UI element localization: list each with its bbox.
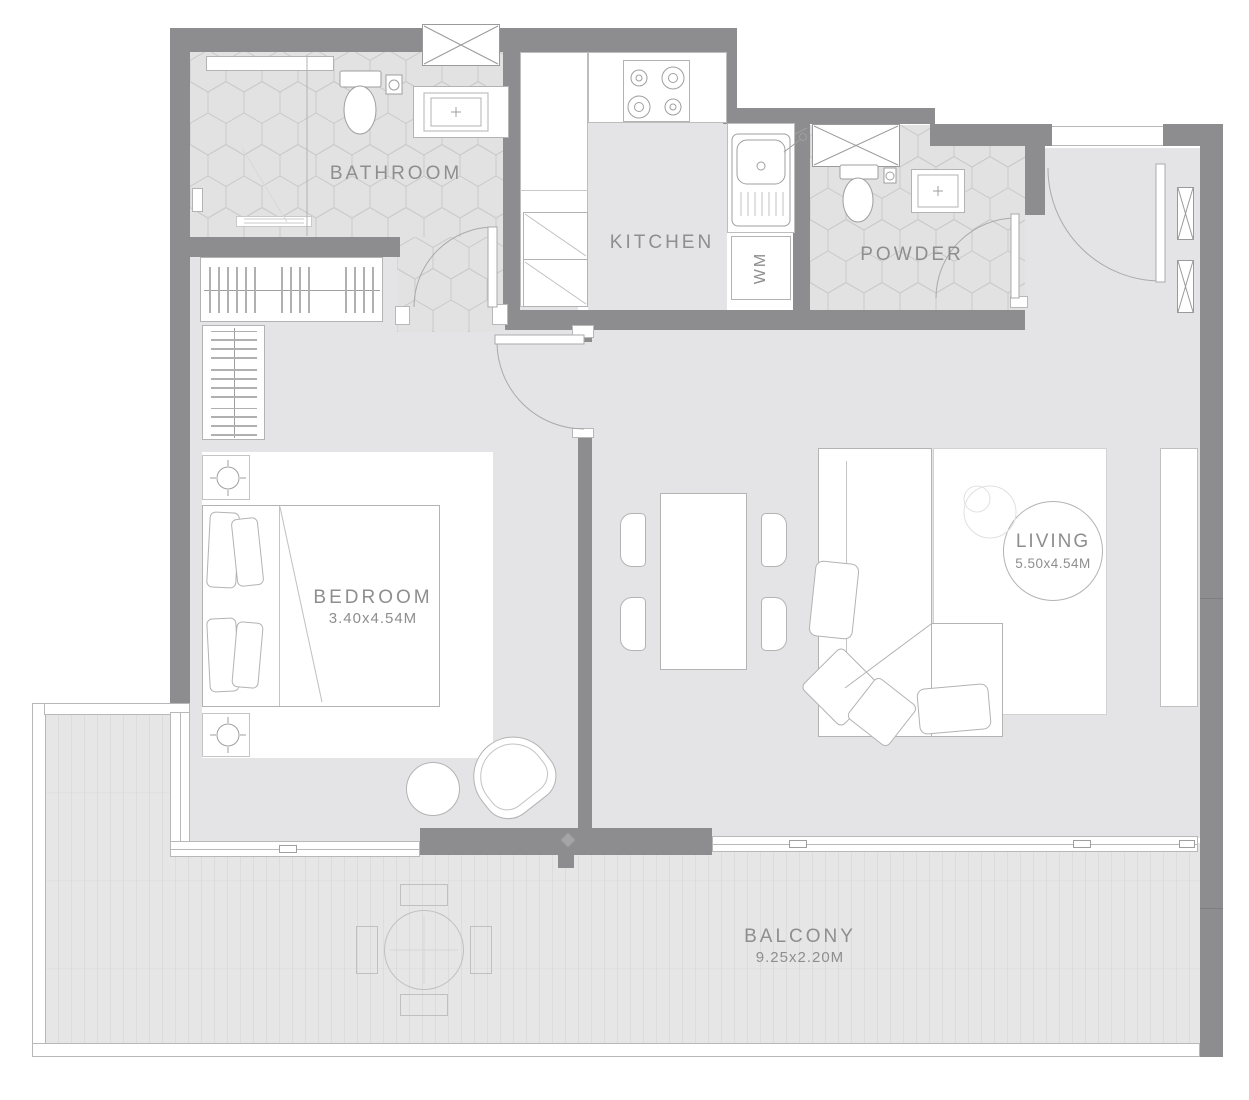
kitchen-cabinet-divider (520, 190, 588, 191)
powder-label: POWDER (832, 243, 992, 267)
bedroom-pouf (406, 762, 460, 816)
balcony-railing-top-connector (44, 703, 190, 715)
wall-bathroom-bottom (170, 237, 400, 257)
floor-plan: WM LIVING 5.50x4.54M (0, 0, 1249, 1100)
balcony-chair (400, 994, 448, 1016)
entry-closet-column-icon (1177, 187, 1194, 240)
living-dims: 5.50x4.54M (1015, 556, 1091, 571)
dining-chair (761, 597, 787, 651)
bedroom-dims: 3.40x4.54M (273, 610, 473, 629)
tv-console (1160, 448, 1198, 707)
wall-left (170, 28, 190, 712)
entry-door-threshold (1052, 126, 1163, 146)
bed-pillow (231, 621, 264, 689)
bedroom-label: BEDROOM (273, 586, 473, 610)
balcony-floor-main (45, 843, 1200, 1057)
balcony-label-group: BALCONY 9.25x2.20M (700, 925, 900, 968)
sofa-pillow (916, 683, 992, 735)
nightstand (202, 713, 250, 757)
bedroom-door-jamb-bottom (572, 428, 594, 438)
powder-label-group: POWDER (832, 243, 992, 267)
powder-vanity (911, 169, 965, 213)
entry-closet-column-icon (1177, 260, 1194, 313)
dining-chair (761, 513, 787, 567)
bedroom-sliding-door (170, 841, 420, 857)
bedroom-door-jamb-top (572, 325, 594, 338)
shower-controls (192, 188, 203, 212)
wall-powder-left (793, 124, 810, 310)
kitchen-label: KITCHEN (582, 231, 742, 255)
balcony-chair (400, 884, 448, 906)
powder-door-jamb-bottom (1010, 296, 1028, 308)
wardrobe-horizontal (200, 257, 383, 322)
wall-right-seam1 (1200, 598, 1223, 599)
shower-shelf (206, 56, 334, 71)
kitchen-label-group: KITCHEN (582, 231, 742, 255)
stove (623, 60, 690, 122)
wall-right-seam2 (1200, 908, 1223, 909)
living-label-circle: LIVING 5.50x4.54M (1003, 501, 1103, 601)
wardrobe-vertical (202, 325, 265, 440)
bathroom-tile-floor-nook (397, 237, 503, 332)
dining-table (660, 493, 747, 670)
nightstand (202, 455, 250, 500)
bathroom-label-group: BATHROOM (286, 162, 506, 186)
entry-corridor-floor (1025, 148, 1200, 330)
bathroom-door-jamb-right (492, 304, 508, 325)
living-sliding-door (712, 836, 1198, 852)
balcony-post (558, 853, 574, 868)
wall-powder-right (1025, 146, 1045, 215)
balcony-dims: 9.25x2.20M (700, 949, 900, 968)
bathroom-label: BATHROOM (286, 162, 506, 186)
wall-powder-top (723, 108, 935, 124)
wall-top-right-a (930, 124, 1052, 146)
duct-shaft-icon (812, 124, 900, 167)
balcony-chair (356, 926, 378, 974)
balcony-table (384, 910, 464, 990)
sofa-pillow (808, 560, 860, 640)
shower-drain (236, 216, 312, 227)
balcony-label: BALCONY (700, 925, 900, 949)
bedroom-label-group: BEDROOM 3.40x4.54M (273, 586, 473, 629)
duct-shaft-icon (422, 24, 500, 66)
washing-machine-label: WM (752, 252, 770, 284)
living-label: LIVING (1016, 531, 1090, 553)
balcony-railing-bottom (32, 1043, 1200, 1057)
bathroom-tile-floor (190, 50, 503, 237)
kitchen-sink-counter (727, 123, 795, 233)
bathroom-door-jamb-left (395, 306, 410, 325)
balcony-chair (470, 926, 492, 974)
wall-right (1200, 124, 1223, 1057)
fridge-divider (523, 259, 588, 260)
kitchen-floor (588, 123, 727, 312)
bedroom-side-window (170, 712, 190, 843)
bathroom-vanity (413, 86, 509, 138)
dining-chair (620, 597, 646, 651)
wall-bedroom-divider (578, 428, 592, 828)
dining-chair (620, 513, 646, 567)
balcony-railing-left (32, 703, 46, 1057)
